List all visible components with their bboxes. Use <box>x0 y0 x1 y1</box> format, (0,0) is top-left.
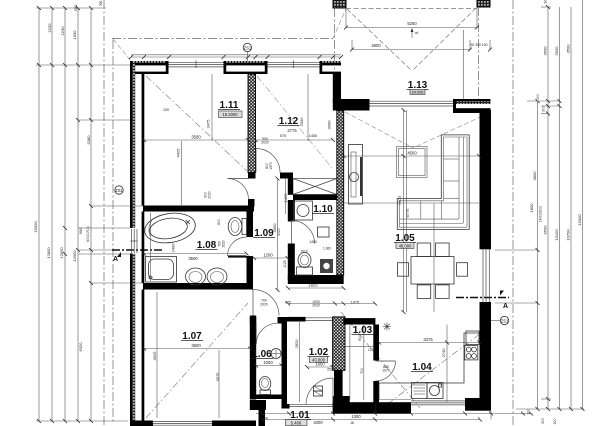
svg-text:24.000: 24.000 <box>412 91 424 95</box>
svg-text:2230: 2230 <box>60 26 65 36</box>
svg-text:3500: 3500 <box>543 46 548 56</box>
svg-text:3375: 3375 <box>423 337 433 342</box>
svg-text:ZS1: ZS1 <box>501 319 509 324</box>
svg-text:A: A <box>503 303 508 310</box>
svg-text:2775: 2775 <box>287 128 297 133</box>
svg-text:A: A <box>113 256 118 263</box>
svg-text:1825: 1825 <box>308 283 318 288</box>
svg-text:5.400: 5.400 <box>291 421 302 426</box>
svg-text:15000: 15000 <box>33 221 38 233</box>
svg-text:100: 100 <box>536 94 540 100</box>
svg-text:4800: 4800 <box>371 43 381 48</box>
svg-text:12800: 12800 <box>46 247 51 259</box>
svg-text:5250: 5250 <box>407 21 417 26</box>
svg-text:900: 900 <box>78 227 83 234</box>
svg-text:300: 300 <box>542 106 546 112</box>
svg-text:2230: 2230 <box>47 23 52 33</box>
svg-text:2020: 2020 <box>208 191 212 199</box>
svg-text:1970: 1970 <box>269 162 273 170</box>
svg-text:3975: 3975 <box>215 372 220 382</box>
svg-text:3500: 3500 <box>191 343 201 348</box>
svg-text:3500: 3500 <box>554 46 559 56</box>
svg-text:15000: 15000 <box>577 214 582 226</box>
svg-text:2020: 2020 <box>260 302 268 306</box>
svg-text:900: 900 <box>358 335 362 341</box>
svg-text:700: 700 <box>360 368 364 374</box>
svg-text:1475: 1475 <box>351 301 359 305</box>
svg-text:10700: 10700 <box>566 229 571 241</box>
svg-text:100: 100 <box>527 409 531 415</box>
svg-text:2020: 2020 <box>261 141 269 145</box>
svg-text:1125: 1125 <box>283 260 287 267</box>
svg-text:2020: 2020 <box>277 228 281 236</box>
svg-text:1970: 1970 <box>382 369 390 373</box>
svg-text:48.000: 48.000 <box>399 244 412 249</box>
svg-text:4800: 4800 <box>532 171 537 181</box>
svg-text:50 300 100: 50 300 100 <box>471 43 488 47</box>
svg-text:2020: 2020 <box>312 304 320 308</box>
svg-text:250: 250 <box>327 368 333 372</box>
svg-text:J6: J6 <box>350 421 354 425</box>
svg-text:12000: 12000 <box>72 250 77 262</box>
svg-text:3475: 3475 <box>206 119 211 129</box>
svg-text:6320: 6320 <box>78 342 83 352</box>
svg-text:1425: 1425 <box>283 193 288 203</box>
svg-text:600(1710): 600(1710) <box>86 226 90 241</box>
svg-text:3500: 3500 <box>191 135 201 140</box>
svg-text:4425: 4425 <box>176 148 181 158</box>
svg-text:100: 100 <box>262 417 268 421</box>
svg-text:4000: 4000 <box>313 420 323 425</box>
svg-text:1900: 1900 <box>72 30 77 40</box>
svg-text:6775: 6775 <box>405 208 410 218</box>
svg-text:3900: 3900 <box>327 120 332 130</box>
svg-text:4925: 4925 <box>152 351 157 361</box>
svg-text:16.2000: 16.2000 <box>222 112 238 117</box>
svg-text:2740: 2740 <box>441 348 446 358</box>
svg-text:300: 300 <box>99 0 103 6</box>
svg-text:14/10(900): 14/10(900) <box>539 206 543 222</box>
svg-text:100: 100 <box>163 108 169 112</box>
svg-text:✳: ✳ <box>382 322 391 334</box>
svg-text:1000: 1000 <box>263 360 273 365</box>
svg-text:2020: 2020 <box>222 240 226 247</box>
svg-text:875: 875 <box>285 301 291 305</box>
svg-text:1450: 1450 <box>309 240 317 244</box>
svg-text:1450: 1450 <box>309 134 317 138</box>
svg-text:2820: 2820 <box>294 339 299 349</box>
svg-text:9500: 9500 <box>543 225 548 235</box>
svg-text:10100: 10100 <box>554 229 559 241</box>
svg-text:575: 575 <box>280 134 286 138</box>
svg-text:3500: 3500 <box>566 44 571 54</box>
svg-text:300: 300 <box>73 4 78 11</box>
svg-text:300: 300 <box>544 0 548 4</box>
svg-text:125: 125 <box>368 348 374 352</box>
svg-text:12600: 12600 <box>59 247 64 259</box>
svg-text:5675: 5675 <box>397 195 402 205</box>
svg-text:1800: 1800 <box>529 203 534 213</box>
svg-text:1010: 1010 <box>300 250 308 254</box>
svg-text:1200: 1200 <box>263 253 273 258</box>
svg-text:1650: 1650 <box>315 362 325 367</box>
svg-text:1.360: 1.360 <box>323 247 331 251</box>
svg-text:800: 800 <box>217 219 221 225</box>
svg-text:ZS1: ZS1 <box>115 188 123 193</box>
svg-text:4500: 4500 <box>407 151 417 156</box>
svg-text:300: 300 <box>553 419 557 425</box>
svg-text:2400: 2400 <box>171 243 176 253</box>
svg-text:3500: 3500 <box>188 256 198 261</box>
svg-text:5380: 5380 <box>86 135 91 145</box>
svg-text:ZS1: ZS1 <box>244 46 252 51</box>
svg-text:300: 300 <box>541 418 545 424</box>
svg-text:3300: 3300 <box>299 117 304 127</box>
svg-text:1300: 1300 <box>351 414 361 419</box>
